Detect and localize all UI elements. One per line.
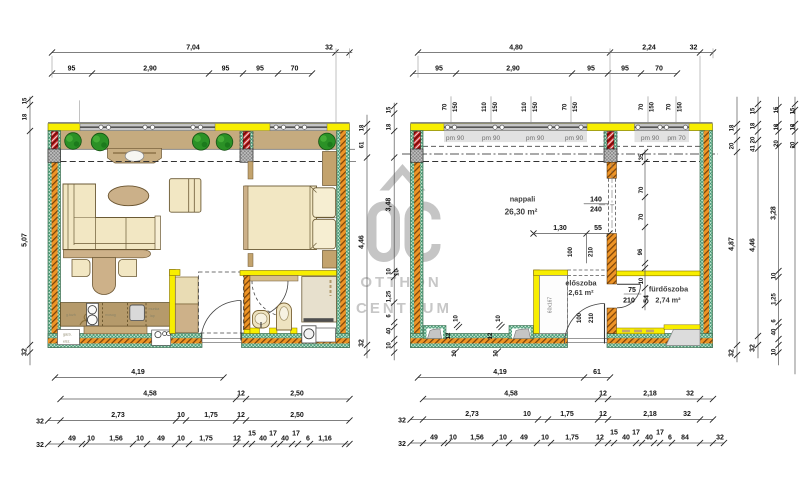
svg-text:70: 70 <box>291 66 299 73</box>
svg-text:75: 75 <box>628 287 636 294</box>
svg-text:60x167: 60x167 <box>548 297 554 314</box>
svg-text:32: 32 <box>325 45 333 52</box>
svg-text:40: 40 <box>281 436 289 443</box>
svg-text:15: 15 <box>248 431 256 438</box>
svg-text:4,19: 4,19 <box>493 369 507 376</box>
svg-text:1,75: 1,75 <box>204 412 218 419</box>
svg-text:95: 95 <box>621 66 629 73</box>
svg-text:10: 10 <box>494 350 500 357</box>
svg-text:2,50: 2,50 <box>290 391 304 398</box>
svg-text:20: 20 <box>751 136 757 143</box>
svg-text:15: 15 <box>774 106 780 113</box>
svg-text:32: 32 <box>729 349 736 357</box>
svg-text:32: 32 <box>690 45 698 52</box>
svg-text:210: 210 <box>589 312 595 323</box>
svg-text:4,80: 4,80 <box>509 45 523 52</box>
svg-text:10: 10 <box>541 435 549 442</box>
svg-text:49: 49 <box>520 435 528 442</box>
svg-text:61: 61 <box>360 141 366 148</box>
svg-text:2,90: 2,90 <box>143 66 157 73</box>
svg-text:2,24: 2,24 <box>642 45 656 52</box>
svg-text:140: 140 <box>590 197 602 204</box>
svg-text:12: 12 <box>237 391 245 398</box>
svg-text:pm 90: pm 90 <box>482 135 501 142</box>
svg-text:10: 10 <box>449 435 457 442</box>
svg-text:12: 12 <box>599 391 607 398</box>
svg-text:32: 32 <box>398 441 406 448</box>
svg-text:95: 95 <box>587 66 595 73</box>
svg-text:15: 15 <box>387 106 393 113</box>
svg-text:210: 210 <box>623 298 635 305</box>
svg-text:95: 95 <box>435 66 443 73</box>
svg-text:110: 110 <box>482 102 488 112</box>
svg-text:17: 17 <box>269 431 277 438</box>
svg-text:5,07: 5,07 <box>22 233 29 247</box>
svg-text:pm 90: pm 90 <box>641 135 660 142</box>
svg-text:10: 10 <box>87 436 95 443</box>
svg-text:12: 12 <box>599 411 607 418</box>
svg-text:20: 20 <box>790 141 796 148</box>
svg-text:32: 32 <box>683 411 691 418</box>
svg-text:150: 150 <box>453 101 459 112</box>
svg-text:95: 95 <box>68 66 76 73</box>
svg-text:1,25: 1,25 <box>772 293 778 305</box>
svg-text:1,75: 1,75 <box>565 435 579 442</box>
svg-text:10: 10 <box>395 269 401 276</box>
svg-text:pm 90: pm 90 <box>526 135 545 142</box>
svg-text:18: 18 <box>360 124 366 131</box>
svg-text:18: 18 <box>790 123 796 130</box>
svg-text:40: 40 <box>622 435 630 442</box>
svg-text:18: 18 <box>23 113 29 120</box>
svg-text:150: 150 <box>650 101 656 112</box>
svg-text:2,73: 2,73 <box>465 411 479 418</box>
svg-text:1,75: 1,75 <box>560 411 574 418</box>
svg-text:49: 49 <box>68 436 76 443</box>
svg-text:15: 15 <box>751 107 757 114</box>
svg-text:70: 70 <box>639 186 645 193</box>
svg-text:18: 18 <box>387 123 393 130</box>
svg-text:12: 12 <box>446 332 452 339</box>
svg-text:240: 240 <box>590 207 602 214</box>
svg-text:12: 12 <box>233 436 241 443</box>
svg-text:110: 110 <box>522 102 528 112</box>
svg-text:10: 10 <box>772 348 778 355</box>
svg-text:100: 100 <box>568 246 574 257</box>
svg-text:40: 40 <box>387 327 393 334</box>
svg-text:18: 18 <box>730 124 736 131</box>
svg-text:12: 12 <box>488 332 494 339</box>
svg-text:150: 150 <box>533 101 539 112</box>
svg-text:lap: lap <box>150 314 155 318</box>
svg-text:12: 12 <box>237 412 245 419</box>
svg-text:10: 10 <box>177 436 185 443</box>
svg-text:41: 41 <box>751 145 757 152</box>
svg-text:15: 15 <box>610 430 618 437</box>
svg-text:17: 17 <box>632 430 640 437</box>
svg-text:70: 70 <box>443 103 449 110</box>
svg-text:2,74 m²: 2,74 m² <box>655 296 681 305</box>
svg-text:4,46: 4,46 <box>750 238 757 252</box>
svg-text:17: 17 <box>292 431 300 438</box>
svg-text:70: 70 <box>639 103 645 110</box>
svg-text:32: 32 <box>750 344 757 352</box>
svg-text:35: 35 <box>639 153 645 160</box>
svg-text:10: 10 <box>499 435 507 442</box>
svg-text:1,25: 1,25 <box>387 290 393 302</box>
svg-text:32: 32 <box>22 348 29 356</box>
svg-text:54: 54 <box>644 295 651 303</box>
svg-text:26,30 m²: 26,30 m² <box>505 208 538 217</box>
svg-text:70: 70 <box>655 66 663 73</box>
svg-text:96: 96 <box>638 248 644 255</box>
svg-text:1,56: 1,56 <box>109 436 123 443</box>
svg-text:4,58: 4,58 <box>504 391 518 398</box>
svg-text:20: 20 <box>730 142 736 149</box>
svg-text:10: 10 <box>772 272 778 279</box>
svg-text:55: 55 <box>594 225 602 232</box>
svg-text:70: 70 <box>667 103 673 110</box>
svg-text:40: 40 <box>259 436 267 443</box>
svg-text:150: 150 <box>573 101 579 112</box>
svg-text:előszoba: előszoba <box>565 279 597 288</box>
svg-text:32: 32 <box>398 418 406 425</box>
svg-text:70: 70 <box>563 103 569 110</box>
svg-text:pm 90: pm 90 <box>446 135 465 142</box>
svg-text:munka: munka <box>149 307 160 311</box>
svg-text:6: 6 <box>668 435 672 442</box>
svg-text:CENTRUM: CENTRUM <box>356 300 452 317</box>
svg-text:2,90: 2,90 <box>506 66 520 73</box>
svg-text:OTTHON: OTTHON <box>360 274 441 291</box>
svg-text:210: 210 <box>589 246 595 257</box>
svg-text:15: 15 <box>23 97 29 104</box>
svg-text:2,18: 2,18 <box>643 411 657 418</box>
svg-text:4,87: 4,87 <box>729 237 736 251</box>
svg-text:10: 10 <box>387 268 393 275</box>
svg-text:pm 70: pm 70 <box>667 135 686 142</box>
svg-text:10: 10 <box>496 315 502 322</box>
svg-text:61: 61 <box>593 369 601 376</box>
svg-text:g.tuzh: g.tuzh <box>66 313 76 317</box>
svg-text:12: 12 <box>596 435 604 442</box>
svg-text:20: 20 <box>774 140 780 147</box>
svg-text:32: 32 <box>36 419 44 426</box>
svg-text:3,28: 3,28 <box>771 206 778 220</box>
svg-text:4,19: 4,19 <box>131 369 145 376</box>
svg-text:10: 10 <box>136 436 144 443</box>
svg-text:150: 150 <box>678 101 684 112</box>
svg-text:49: 49 <box>157 436 165 443</box>
svg-text:10: 10 <box>452 350 458 357</box>
svg-text:2,61 m²: 2,61 m² <box>568 288 594 297</box>
svg-text:100: 100 <box>577 312 583 323</box>
svg-text:gázó.: gázó. <box>63 333 72 337</box>
svg-text:18: 18 <box>751 122 757 129</box>
svg-text:95: 95 <box>256 66 264 73</box>
svg-text:15: 15 <box>790 107 796 114</box>
svg-text:32: 32 <box>359 339 366 347</box>
svg-text:nappali: nappali <box>510 195 536 204</box>
svg-text:70: 70 <box>639 213 645 220</box>
svg-text:4,58: 4,58 <box>143 391 157 398</box>
svg-text:10: 10 <box>454 315 460 322</box>
svg-text:150: 150 <box>493 101 499 112</box>
svg-text:2,73: 2,73 <box>111 412 125 419</box>
svg-text:10: 10 <box>639 277 645 284</box>
svg-text:2,18: 2,18 <box>643 391 657 398</box>
svg-text:1,16: 1,16 <box>318 436 332 443</box>
svg-text:3,48: 3,48 <box>386 198 393 212</box>
svg-text:mosog: mosog <box>105 313 116 317</box>
svg-text:32: 32 <box>36 442 44 449</box>
svg-text:1,56: 1,56 <box>470 435 484 442</box>
svg-text:40: 40 <box>645 435 653 442</box>
svg-text:10: 10 <box>523 411 531 418</box>
svg-text:17: 17 <box>656 430 664 437</box>
svg-text:2,50: 2,50 <box>290 412 304 419</box>
svg-text:6: 6 <box>306 436 310 443</box>
svg-text:84: 84 <box>681 435 689 442</box>
svg-text:49: 49 <box>430 435 438 442</box>
svg-text:pm 90: pm 90 <box>565 135 584 142</box>
svg-text:32: 32 <box>716 435 724 442</box>
svg-text:4,46: 4,46 <box>359 235 366 249</box>
svg-text:32: 32 <box>686 391 694 398</box>
svg-text:elsz.: elsz. <box>63 340 70 344</box>
svg-text:1,30: 1,30 <box>553 225 567 232</box>
svg-text:7,04: 7,04 <box>186 45 200 52</box>
svg-text:10: 10 <box>177 412 185 419</box>
svg-text:fürdőszoba: fürdőszoba <box>649 285 689 294</box>
svg-text:40: 40 <box>772 328 778 335</box>
svg-text:10: 10 <box>387 342 393 349</box>
svg-text:95: 95 <box>222 66 230 73</box>
svg-text:1,75: 1,75 <box>199 436 213 443</box>
svg-text:18: 18 <box>774 123 780 130</box>
